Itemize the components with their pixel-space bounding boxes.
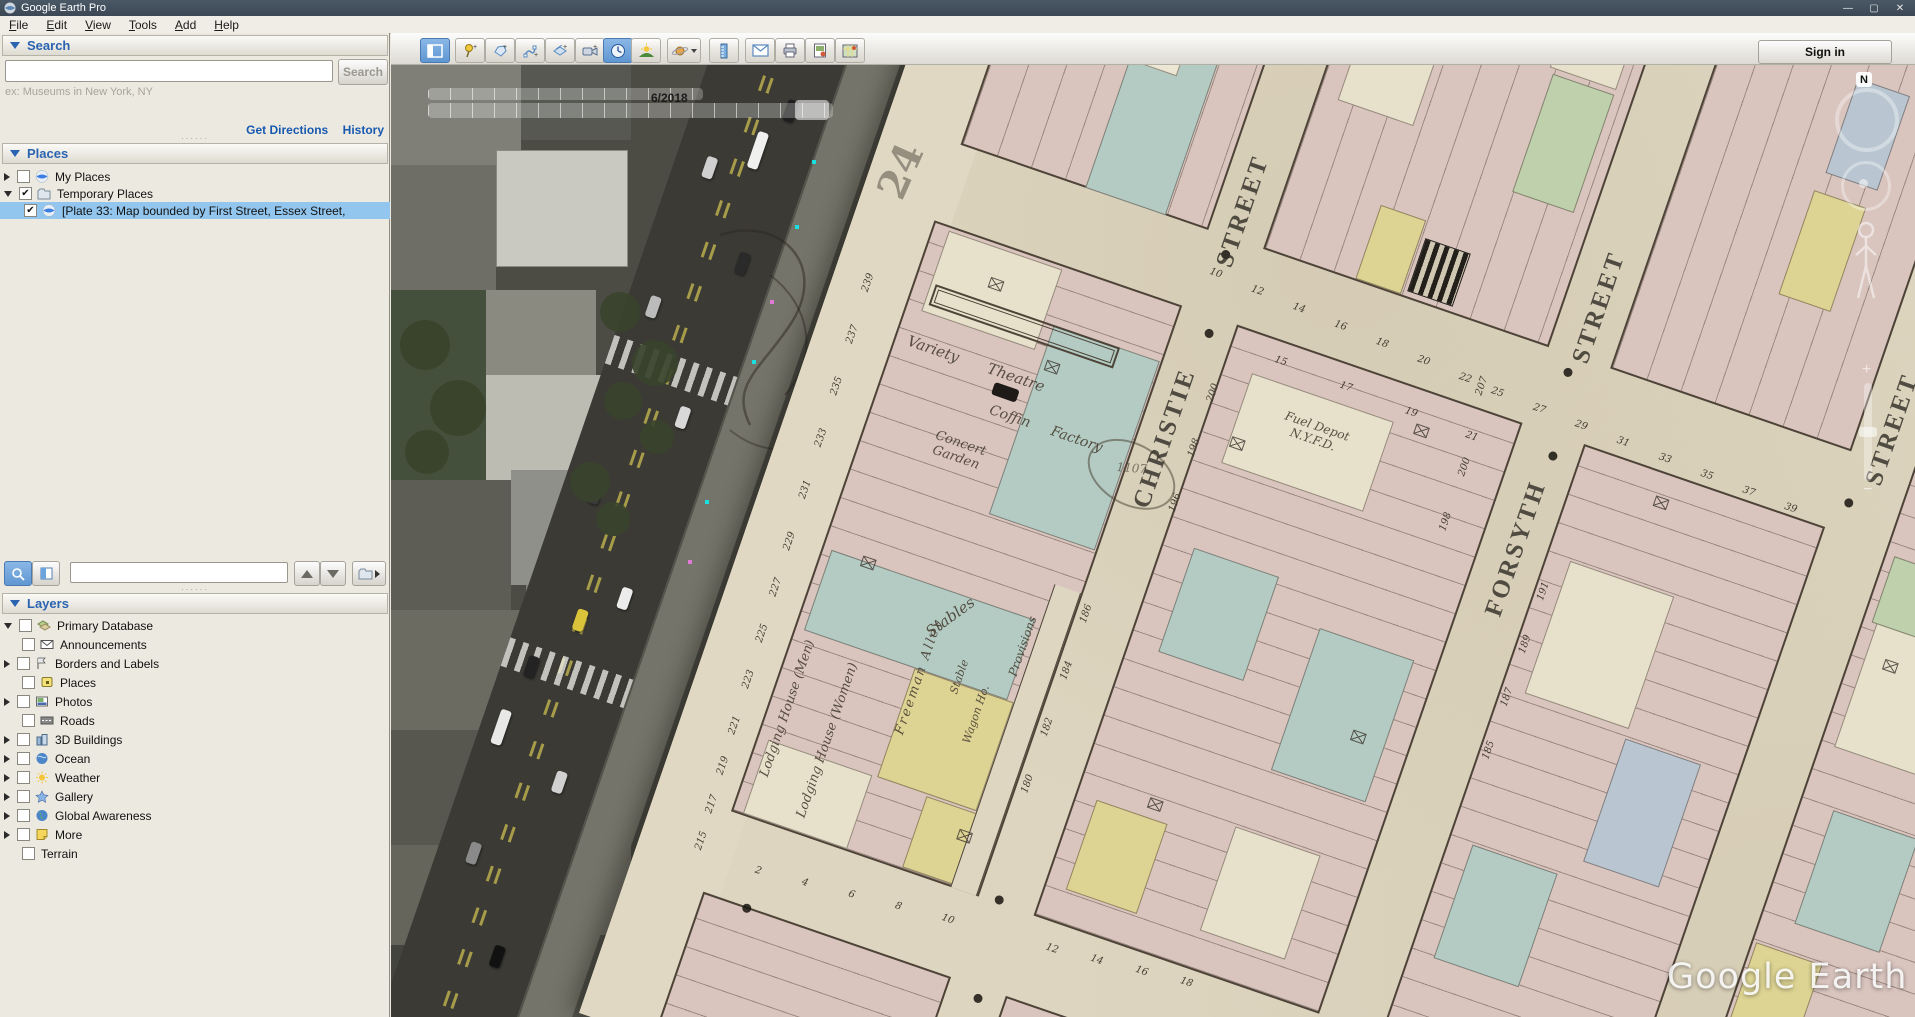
tree-label: [Plate 33: Map bounded by First Street, … xyxy=(62,204,345,218)
earth-icon xyxy=(42,204,56,217)
expander-icon[interactable] xyxy=(4,831,10,839)
edge-artifact xyxy=(812,160,816,164)
layer-label: Primary Database xyxy=(57,619,153,633)
lot-number: 184 xyxy=(1058,660,1075,682)
sign-in-button[interactable]: Sign in xyxy=(1758,40,1892,64)
layer-row-ocean[interactable]: Ocean xyxy=(4,750,386,767)
places-panel-title: Places xyxy=(27,146,68,161)
layer-row-global-awareness[interactable]: Global Awareness xyxy=(4,807,386,824)
menu-view[interactable]: View xyxy=(76,17,120,33)
flyout-arrow-icon xyxy=(375,570,380,578)
compass-north-button[interactable]: N xyxy=(1856,72,1872,87)
get-directions-link[interactable]: Get Directions xyxy=(246,123,328,137)
zoom-in-icon[interactable]: + xyxy=(1862,361,1871,379)
lot-number: 2 xyxy=(753,865,763,877)
note-icon xyxy=(35,828,49,841)
car xyxy=(674,405,692,429)
move-joystick-dot[interactable] xyxy=(1859,179,1868,188)
folder-icon xyxy=(358,568,373,580)
folder-icon xyxy=(37,187,51,200)
add-placemark-button[interactable]: + xyxy=(455,38,485,63)
title-bar: Google Earth Pro — ▢ ✕ xyxy=(0,0,1915,16)
svg-text:+: + xyxy=(503,44,507,51)
map-toolbar: + + + + + Sign in xyxy=(391,33,1915,65)
layer-label: Gallery xyxy=(55,790,93,804)
view-in-maps-button[interactable] xyxy=(835,38,865,63)
buildings-icon xyxy=(35,733,49,746)
layer-label: Ocean xyxy=(55,752,90,766)
app-earth-icon xyxy=(4,2,16,14)
checkbox-unchecked[interactable] xyxy=(17,752,30,765)
time-slider-track[interactable] xyxy=(428,103,833,118)
expander-icon[interactable] xyxy=(4,736,10,744)
places-search-button[interactable] xyxy=(4,561,30,584)
video-camera-icon: + xyxy=(582,44,598,58)
clock-icon xyxy=(610,43,626,59)
pin-icon xyxy=(40,676,54,689)
layer-label: Photos xyxy=(55,695,92,709)
zoom-out-icon[interactable]: − xyxy=(1863,481,1872,499)
sunlight-button[interactable] xyxy=(631,38,661,63)
down-arrow-icon xyxy=(327,570,339,578)
layer-row-terrain[interactable]: Terrain xyxy=(22,845,386,862)
tree xyxy=(600,292,640,332)
lot-number: 18 xyxy=(1179,975,1195,990)
svg-text:+: + xyxy=(593,44,597,51)
edge-artifact xyxy=(795,225,799,229)
add-image-overlay-button[interactable]: + xyxy=(545,38,575,63)
expander-icon[interactable] xyxy=(4,698,10,706)
tree-label: Temporary Places xyxy=(57,187,153,201)
lot-number: 12 xyxy=(1044,942,1060,957)
checkbox-unchecked[interactable] xyxy=(17,771,30,784)
tree xyxy=(596,502,630,536)
menu-tools[interactable]: Tools xyxy=(120,17,166,33)
minimize-button[interactable]: — xyxy=(1835,0,1861,16)
tree xyxy=(570,462,610,502)
sidebar: Search Search ex: Museums in New York, N… xyxy=(0,33,390,1017)
layer-label: Weather xyxy=(55,771,100,785)
lot-number: 12 xyxy=(1250,284,1266,299)
search-panel-header[interactable]: Search xyxy=(2,35,388,56)
dropdown-arrow-icon xyxy=(691,49,697,53)
overlay-icon: + xyxy=(552,43,568,59)
move-up-button[interactable] xyxy=(294,561,320,586)
survey-dot xyxy=(1203,328,1214,339)
tree xyxy=(430,380,486,436)
expander-icon[interactable] xyxy=(4,793,10,801)
maximize-button[interactable]: ▢ xyxy=(1861,0,1887,16)
tree-label: My Places xyxy=(55,170,110,184)
checkbox-unchecked[interactable] xyxy=(17,809,30,822)
lot-number: 8 xyxy=(893,900,903,912)
tree-row-plate33-selected[interactable]: ✔ [Plate 33: Map bounded by First Street… xyxy=(0,202,390,219)
expander-icon[interactable] xyxy=(4,623,12,629)
layer-label: Global Awareness xyxy=(55,809,152,823)
expander-icon[interactable] xyxy=(4,191,12,197)
places-panel-header[interactable]: Places xyxy=(2,143,388,164)
database-icon xyxy=(37,619,51,632)
checkbox-unchecked[interactable] xyxy=(22,676,35,689)
menu-help[interactable]: Help xyxy=(205,17,248,33)
menu-file[interactable]: File xyxy=(0,17,37,33)
survey-dot xyxy=(994,894,1005,905)
checkbox-unchecked[interactable] xyxy=(22,714,35,727)
checkbox-checked[interactable]: ✔ xyxy=(24,204,37,217)
saturn-icon xyxy=(671,44,689,58)
satellite-rooftop xyxy=(496,150,628,267)
layer-label: 3D Buildings xyxy=(55,733,122,747)
layer-row-primary-database[interactable]: Primary Database xyxy=(4,617,386,634)
ruler-icon xyxy=(719,43,729,59)
folder-menu-button[interactable] xyxy=(352,561,386,586)
add-polygon-button[interactable]: + xyxy=(485,38,515,63)
collapse-triangle-icon xyxy=(10,42,20,49)
checkbox-checked[interactable]: ✔ xyxy=(19,187,32,200)
layers-panel-title: Layers xyxy=(27,596,69,611)
car xyxy=(701,156,719,180)
satellite-rooftop xyxy=(391,165,496,290)
panel-split-icon xyxy=(40,567,53,580)
save-image-button[interactable] xyxy=(805,38,835,63)
envelope-icon xyxy=(40,638,54,651)
lot-number: 10 xyxy=(940,912,956,927)
edge-artifact xyxy=(752,360,756,364)
historical-imagery-button[interactable] xyxy=(603,38,633,63)
zoom-slider-knob[interactable] xyxy=(1859,427,1877,437)
history-link[interactable]: History xyxy=(343,123,384,137)
city-block xyxy=(654,892,951,1017)
lot-number: 20 xyxy=(1416,354,1432,369)
lot-number: 16 xyxy=(1333,319,1349,334)
car xyxy=(488,944,506,968)
checkbox-unchecked[interactable] xyxy=(17,733,30,746)
lot-number: 18 xyxy=(1374,336,1390,351)
survey-dot xyxy=(972,993,983,1004)
photo-icon xyxy=(35,695,49,708)
record-tour-button[interactable]: + xyxy=(575,38,605,63)
planet-selector-button[interactable] xyxy=(667,38,701,63)
expander-icon[interactable] xyxy=(4,774,10,782)
lot-number: 180 xyxy=(1019,773,1036,795)
sunrise-icon xyxy=(638,43,655,58)
menu-bar: File Edit View Tools Add Help xyxy=(0,16,1915,34)
lot-number: 37 xyxy=(1741,484,1757,499)
edge-artifact xyxy=(688,560,692,564)
expander-icon[interactable] xyxy=(4,812,10,820)
lot-number: 14 xyxy=(1089,953,1105,968)
tree xyxy=(405,430,449,474)
satellite-rooftop xyxy=(391,480,511,610)
globe-icon xyxy=(35,809,49,822)
car xyxy=(551,770,569,794)
lot-number: 22 xyxy=(1458,371,1474,386)
layer-row-announcements[interactable]: Announcements xyxy=(22,636,386,653)
ruler-button[interactable] xyxy=(709,38,739,63)
bus xyxy=(490,708,512,746)
tree-row-my-places[interactable]: My Places xyxy=(4,168,386,185)
edge-artifact xyxy=(770,300,774,304)
layers-panel-header[interactable]: Layers xyxy=(2,593,388,614)
layer-row-weather[interactable]: Weather xyxy=(4,769,386,786)
checkbox-unchecked[interactable] xyxy=(17,828,30,841)
menu-add[interactable]: Add xyxy=(166,17,205,33)
star-icon xyxy=(35,790,49,803)
svg-text:+: + xyxy=(473,44,477,51)
search-panel-title: Search xyxy=(27,38,70,53)
layer-label: Roads xyxy=(60,714,95,728)
path-icon: + xyxy=(522,43,538,59)
layer-label: More xyxy=(55,828,82,842)
lot-number: 186 xyxy=(1078,603,1095,625)
sun-icon xyxy=(35,771,49,784)
pushpin-icon: + xyxy=(462,43,478,59)
svg-text:+: + xyxy=(534,52,538,59)
tree xyxy=(400,320,450,370)
checkbox-unchecked[interactable] xyxy=(17,657,30,670)
layer-label: Places xyxy=(60,676,96,690)
google-earth-watermark: Google Earth xyxy=(1667,957,1907,997)
expander-icon[interactable] xyxy=(4,755,10,763)
ocean-globe-icon xyxy=(35,752,49,765)
lot-number: 33 xyxy=(1657,451,1673,466)
car xyxy=(644,295,662,319)
tree xyxy=(640,420,674,454)
earth-viewport[interactable]: 1107 24 CHRISTIE STREET FORSYTH STREET S… xyxy=(391,65,1915,1017)
layer-label: Announcements xyxy=(60,638,147,652)
layer-row-places[interactable]: Places xyxy=(22,674,386,691)
add-path-button[interactable]: + xyxy=(515,38,545,63)
flag-icon xyxy=(35,657,49,670)
lot-number: 6 xyxy=(847,888,857,900)
search-input[interactable] xyxy=(5,60,333,82)
car xyxy=(465,841,483,865)
lot-number: 16 xyxy=(1134,964,1150,979)
toggle-sidebar-button[interactable] xyxy=(420,38,450,63)
collapse-triangle-icon xyxy=(10,150,20,157)
printer-icon xyxy=(782,43,798,58)
checkbox-unchecked[interactable] xyxy=(17,170,30,183)
tree xyxy=(632,340,678,386)
sidebar-panel-icon xyxy=(427,44,443,58)
checkbox-unchecked[interactable] xyxy=(19,619,32,632)
image-document-icon xyxy=(813,43,827,58)
layer-row-borders-labels[interactable]: Borders and Labels xyxy=(4,655,386,672)
look-joystick[interactable] xyxy=(1835,88,1899,152)
envelope-icon xyxy=(752,44,769,57)
layer-row-photos[interactable]: Photos xyxy=(4,693,386,710)
magnifier-icon xyxy=(11,567,25,581)
checkbox-unchecked[interactable] xyxy=(22,638,35,651)
survey-dot xyxy=(1547,450,1558,461)
expander-icon[interactable] xyxy=(4,173,10,181)
layer-row-3d-buildings[interactable]: 3D Buildings xyxy=(4,731,386,748)
lot-number: 31 xyxy=(1615,435,1631,450)
polygon-icon: + xyxy=(492,43,508,59)
lot-number: 35 xyxy=(1699,468,1715,483)
lot-number: 182 xyxy=(1039,716,1056,738)
places-filter-input[interactable] xyxy=(70,562,288,583)
lot-number: 25 xyxy=(1490,385,1506,400)
expander-icon[interactable] xyxy=(4,660,10,668)
svg-text:+: + xyxy=(563,44,567,51)
lot-number: 27 xyxy=(1532,402,1548,417)
car xyxy=(616,586,634,610)
layer-row-more[interactable]: More xyxy=(4,826,386,843)
layer-row-roads[interactable]: Roads xyxy=(22,712,386,729)
menu-edit[interactable]: Edit xyxy=(37,17,76,33)
search-hint: ex: Museums in New York, NY xyxy=(5,86,153,98)
close-button[interactable]: ✕ xyxy=(1887,0,1913,16)
layer-label: Borders and Labels xyxy=(55,657,159,671)
city-block xyxy=(957,996,1291,1017)
time-slider-handle[interactable] xyxy=(795,100,829,120)
lot-number: 207 xyxy=(1474,375,1491,397)
earth-icon xyxy=(35,170,49,183)
lot-number: 4 xyxy=(800,877,810,889)
checkbox-unchecked[interactable] xyxy=(17,695,30,708)
search-button[interactable]: Search xyxy=(338,59,388,85)
print-button[interactable] xyxy=(775,38,805,63)
checkbox-unchecked[interactable] xyxy=(17,790,30,803)
satellite-rooftop xyxy=(486,290,596,375)
collapse-triangle-icon xyxy=(10,600,20,607)
tree xyxy=(604,382,642,420)
window-title: Google Earth Pro xyxy=(21,2,106,14)
map-icon xyxy=(842,44,858,58)
checkbox-unchecked[interactable] xyxy=(22,847,35,860)
pegman-control[interactable] xyxy=(1853,220,1879,306)
move-down-button[interactable] xyxy=(320,561,346,586)
lot-number: 14 xyxy=(1291,301,1307,316)
road-icon xyxy=(40,714,54,727)
lot-number: 29 xyxy=(1573,418,1589,433)
time-slider-date: 6/2018 xyxy=(651,91,688,105)
up-arrow-icon xyxy=(301,570,313,578)
places-view-button[interactable] xyxy=(32,561,58,584)
layer-row-gallery[interactable]: Gallery xyxy=(4,788,386,805)
layer-label: Terrain xyxy=(41,847,78,861)
tree-row-temporary-places[interactable]: ✔ Temporary Places xyxy=(4,185,386,202)
edge-artifact xyxy=(705,500,709,504)
email-button[interactable] xyxy=(745,38,775,63)
